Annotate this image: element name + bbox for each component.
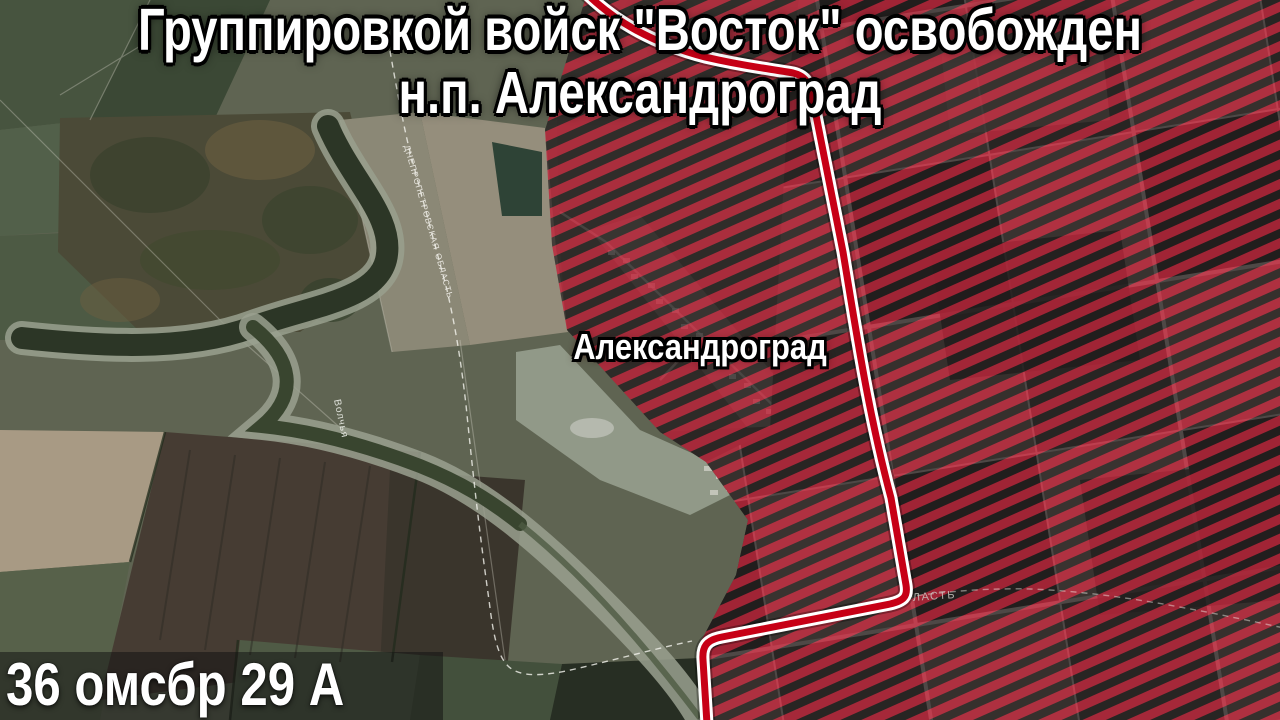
- headline: Группировкой войск "Восток" освобожден н…: [0, 0, 1280, 124]
- infographic-frame: ДНЕПРОПЕТРОВСКАЯ ОБЛАСТЬ ЛАСТЬ Волчья Гр…: [0, 0, 1280, 720]
- unit-credit-label: 36 омсбр 29 А: [6, 652, 344, 720]
- headline-line2: н.п. Александроград: [128, 63, 1152, 124]
- settlement-label: Александроград: [528, 329, 872, 365]
- unit-credit-band: 36 омсбр 29 А: [0, 652, 443, 720]
- headline-line1: Группировкой войск "Восток" освобожден: [128, 0, 1152, 61]
